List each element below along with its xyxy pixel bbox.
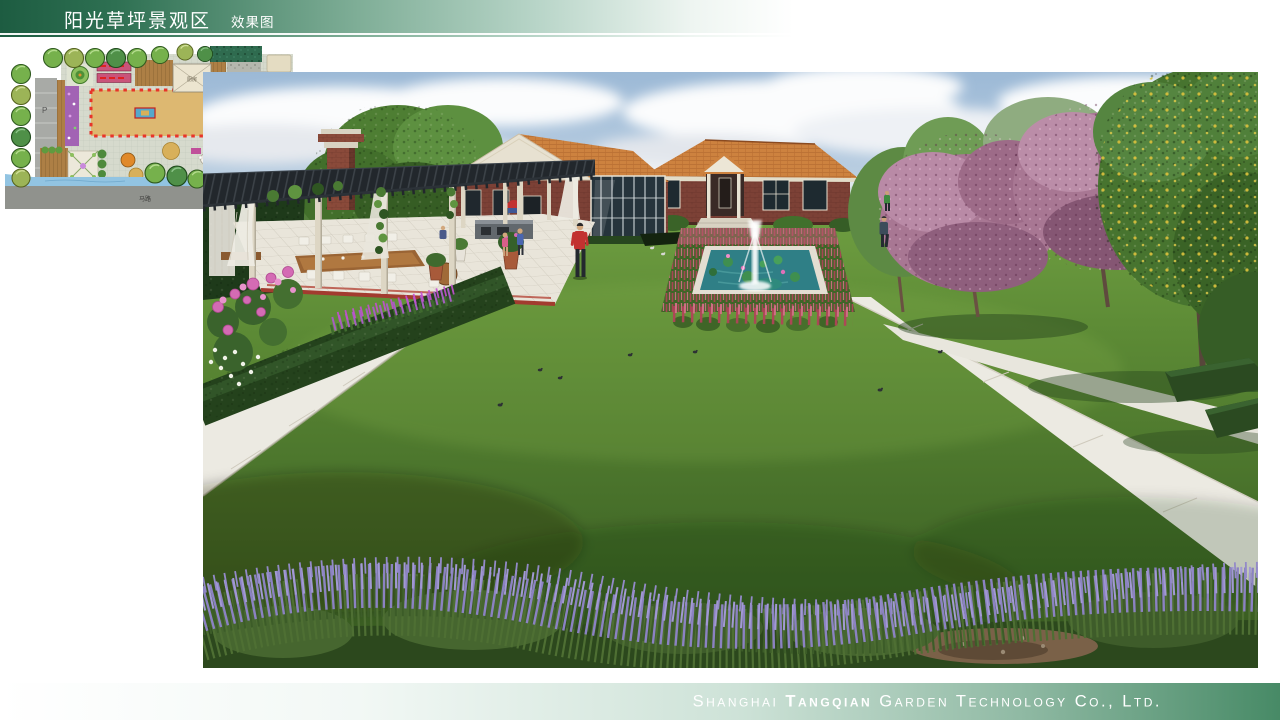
plan-parking-label: P bbox=[42, 106, 47, 115]
plan-lawn-highlight bbox=[91, 90, 209, 136]
rendering-svg bbox=[203, 72, 1258, 668]
rendering-image bbox=[203, 72, 1258, 668]
plan-road-label: 马路 bbox=[139, 195, 151, 203]
page-subtitle: 效果图 bbox=[231, 11, 275, 31]
company-emphasis: Tangqian bbox=[785, 692, 872, 710]
company-suffix: Garden Technology Co., Ltd. bbox=[879, 692, 1162, 710]
header-divider bbox=[0, 33, 1280, 35]
plan-kitchen-label: 厨房 bbox=[187, 76, 197, 83]
presentation-slide: 阳光草坪景观区 效果图 bbox=[0, 0, 1280, 720]
page-title: 阳光草坪景观区 bbox=[64, 6, 211, 33]
footer-bar: Shanghai Tangqian Garden Technology Co.,… bbox=[0, 683, 1280, 720]
company-name: Shanghai Tangqian Garden Technology Co.,… bbox=[693, 692, 1162, 711]
company-prefix: Shanghai bbox=[693, 692, 779, 710]
header-bar: 阳光草坪景观区 效果图 bbox=[0, 0, 1280, 37]
